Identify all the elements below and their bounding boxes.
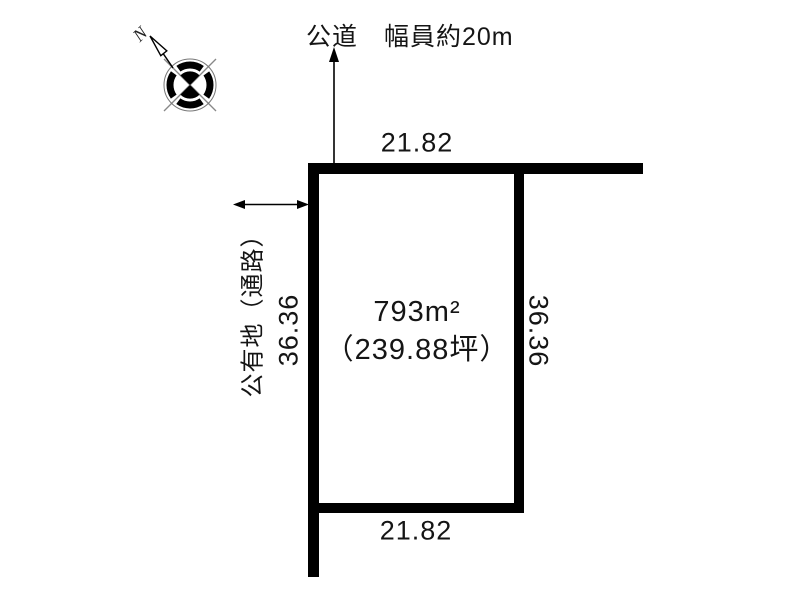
area-square-meters: 793m² [325, 293, 510, 331]
compass-bottom-sector [180, 85, 199, 99]
area-label: 793m² （239.88坪） [325, 293, 510, 369]
compass-top-sector [180, 71, 199, 85]
road-direction-arrow-icon [329, 47, 339, 166]
dimension-right: 36.36 [523, 295, 554, 368]
road-label: 公道 幅員約20m [306, 17, 514, 53]
land-plot-diagram: N 公道 幅員約20m 21.82 21.82 36.36 36.36 公有地（… [0, 0, 797, 598]
compass-icon: N [128, 22, 216, 111]
north-needle-icon [150, 36, 167, 56]
plot-boundary [308, 163, 643, 577]
passage-label: 公有地（通路） [233, 223, 268, 398]
area-tsubo: （239.88坪） [325, 331, 510, 369]
dimension-bottom: 21.82 [380, 516, 453, 547]
compass-north-label: N [128, 22, 152, 46]
passage-width-arrow-icon [233, 200, 309, 209]
dimension-left: 36.36 [274, 294, 305, 367]
dimension-top: 21.82 [381, 128, 454, 159]
